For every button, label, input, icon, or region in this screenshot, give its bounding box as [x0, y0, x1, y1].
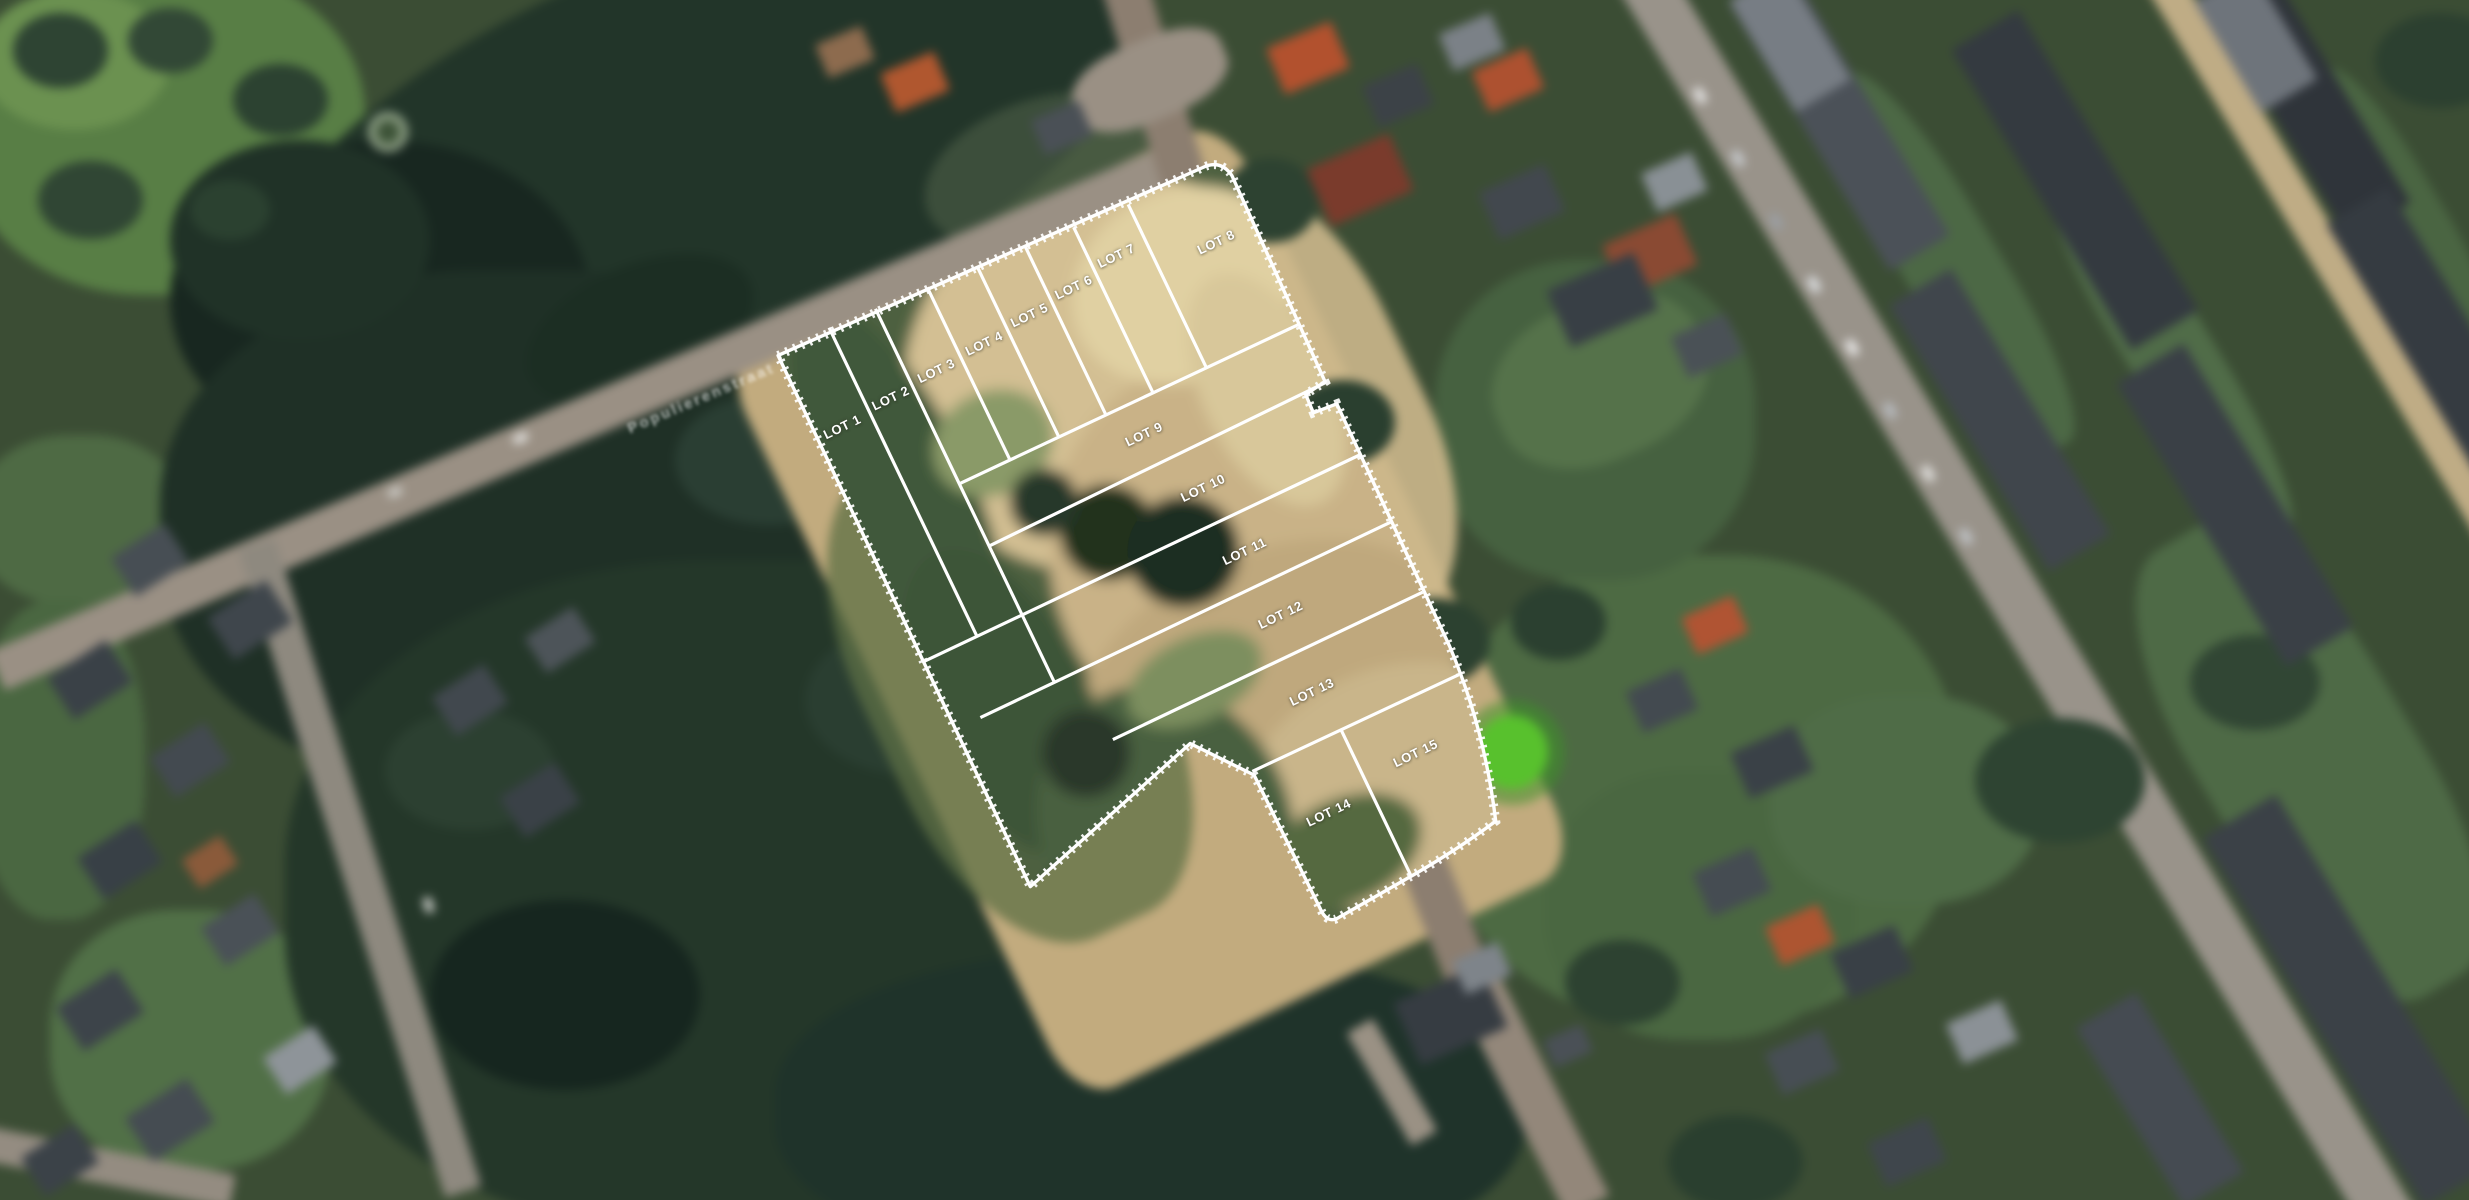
terrain-blob — [190, 180, 270, 240]
terrain-blob — [128, 8, 213, 73]
terrain-blob — [376, 120, 400, 144]
terrain-blob — [430, 900, 700, 1090]
terrain-blob — [13, 13, 108, 88]
terrain-blob — [1975, 718, 2145, 843]
terrain-blob — [233, 64, 328, 136]
terrain-blob — [1668, 1115, 1803, 1200]
terrain-blob — [1565, 940, 1680, 1025]
terrain-blob — [170, 140, 430, 340]
satellite-map: Populierenstraat — [0, 0, 2469, 1200]
terrain-blob — [38, 161, 143, 239]
terrain-blob — [1511, 585, 1606, 660]
